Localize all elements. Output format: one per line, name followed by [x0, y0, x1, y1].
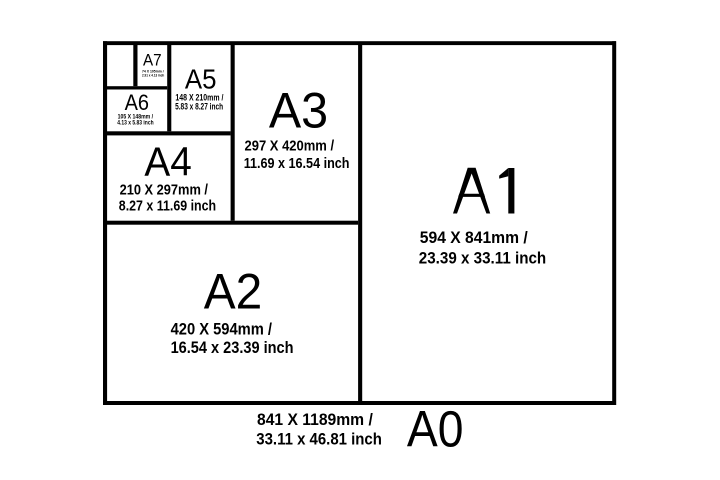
- svg-text:8.27 x 11.69 inch: 8.27 x 11.69 inch: [119, 199, 216, 215]
- svg-text:5.83 x 8.27 inch: 5.83 x 8.27 inch: [175, 101, 223, 112]
- svg-text:210 X 297mm /: 210 X 297mm /: [120, 183, 208, 199]
- svg-text:420 X 594mm /: 420 X 594mm /: [171, 320, 273, 338]
- svg-text:23.39 x 33.11 inch: 23.39 x 33.11 inch: [419, 248, 546, 267]
- svg-text:297 X 420mm /: 297 X 420mm /: [245, 139, 335, 155]
- svg-text:A2: A2: [204, 264, 263, 320]
- svg-text:A0: A0: [407, 401, 464, 458]
- svg-text:11.69 x 16.54 inch: 11.69 x 16.54 inch: [244, 156, 350, 172]
- svg-text:33.11 x 46.81 inch: 33.11 x 46.81 inch: [256, 430, 382, 449]
- svg-text:A6: A6: [125, 90, 149, 115]
- svg-text:2.91 x 4.13 inch: 2.91 x 4.13 inch: [142, 73, 164, 77]
- svg-text:841 X 1189mm /: 841 X 1189mm /: [257, 410, 373, 429]
- svg-text:A4: A4: [144, 138, 191, 184]
- svg-text:16.54 x 23.39 inch: 16.54 x 23.39 inch: [171, 339, 294, 357]
- svg-text:4.13 x 5.83 inch: 4.13 x 5.83 inch: [117, 120, 153, 127]
- svg-text:A3: A3: [269, 82, 328, 139]
- svg-text:A7: A7: [143, 52, 162, 70]
- svg-text:594 X 841mm /: 594 X 841mm /: [420, 228, 528, 247]
- svg-text:A5: A5: [185, 62, 217, 94]
